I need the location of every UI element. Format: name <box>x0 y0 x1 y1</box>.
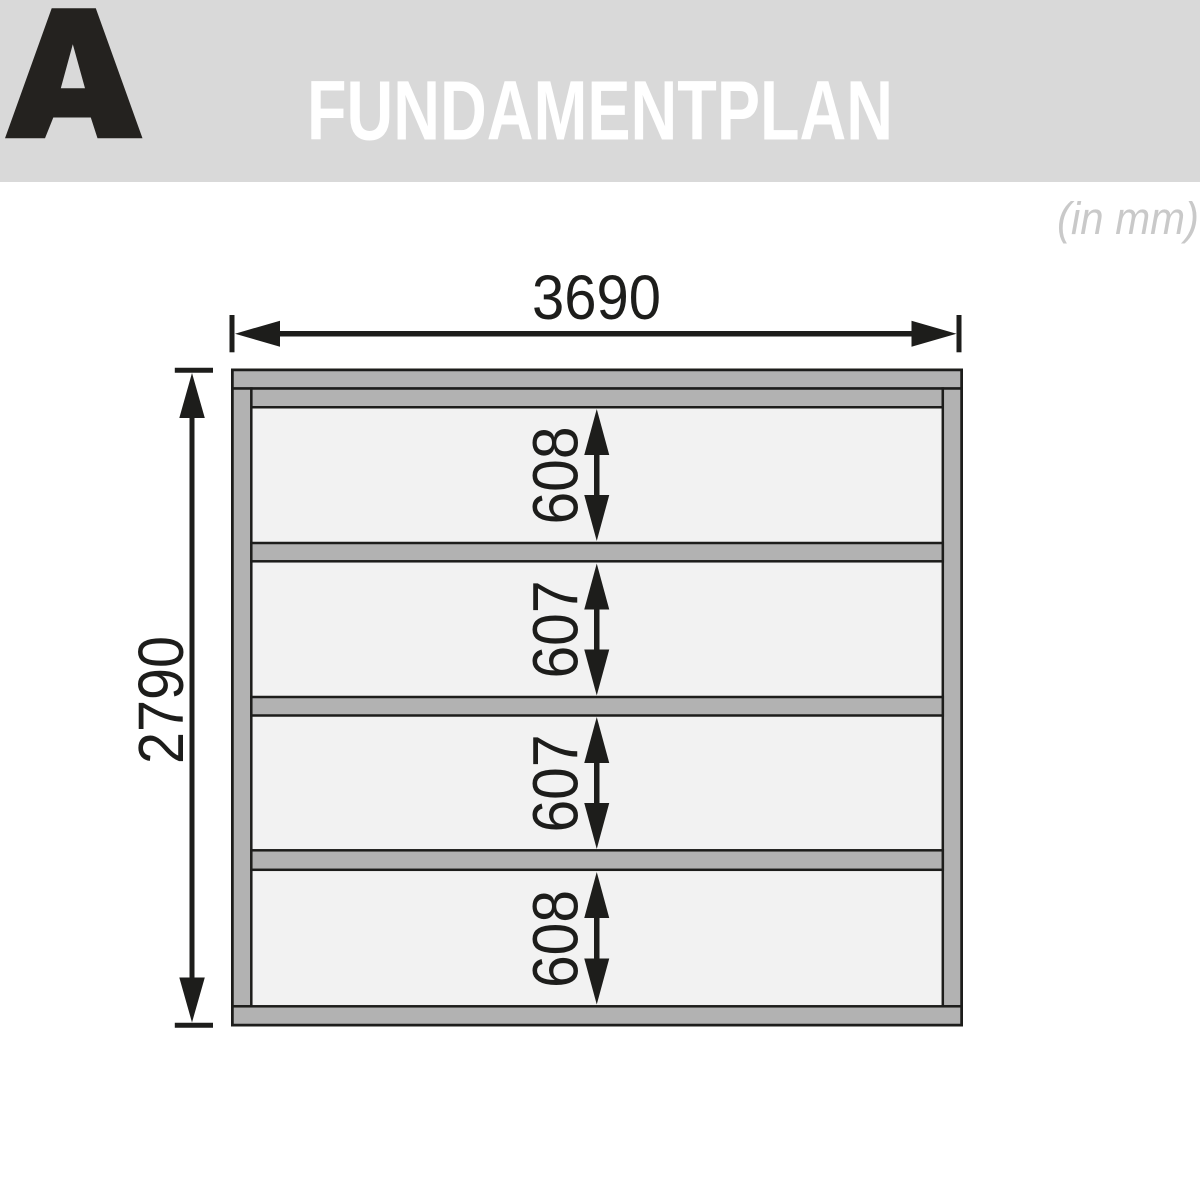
svg-text:608: 608 <box>520 890 592 988</box>
svg-text:607: 607 <box>520 735 592 833</box>
svg-text:FUNDAMENTPLAN: FUNDAMENTPLAN <box>307 64 893 158</box>
svg-text:3690: 3690 <box>532 263 661 333</box>
svg-text:608: 608 <box>520 427 592 525</box>
svg-text:(in mm): (in mm) <box>1057 193 1199 244</box>
svg-text:2790: 2790 <box>125 636 197 764</box>
svg-text:607: 607 <box>520 581 592 679</box>
